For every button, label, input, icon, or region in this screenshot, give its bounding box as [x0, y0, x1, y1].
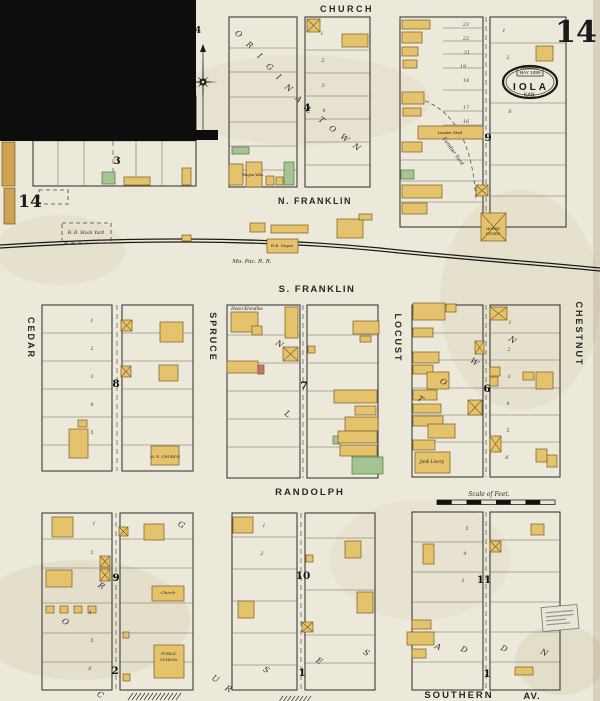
building: [60, 606, 68, 613]
railroad-label: Mo. Pac. R. R.: [231, 259, 271, 265]
scale-bar: [437, 500, 555, 505]
lot-number: 1: [508, 320, 511, 326]
sanborn-map: Hotel KlondikeM. E. CHURCHPUBLICSCHOOLHO…: [0, 0, 600, 701]
building: [123, 632, 129, 638]
building-label: Church: [161, 590, 176, 595]
building: [359, 214, 372, 220]
lot-number: 22: [462, 36, 469, 42]
building: [403, 60, 417, 68]
building: [340, 445, 377, 456]
building: [144, 524, 164, 540]
building: [258, 365, 264, 374]
block-number: 10: [296, 570, 311, 582]
building-label: LIVERY: [486, 232, 501, 236]
scale-bar-segment: [437, 500, 452, 505]
building: [345, 417, 378, 431]
lot-number: 2: [505, 55, 509, 61]
building: [352, 457, 383, 474]
building-label: Hotel Klondike: [230, 306, 263, 311]
block-number: 3: [113, 155, 120, 167]
building: [52, 517, 73, 537]
lot-number: 2: [89, 346, 93, 352]
lot-number: 21: [463, 50, 470, 56]
block-number: 2: [111, 665, 118, 677]
lot-number: 5: [506, 428, 509, 434]
building: [536, 372, 553, 389]
building: [536, 46, 553, 61]
building: [182, 168, 191, 185]
lot-number: 1: [92, 521, 95, 527]
building: [402, 32, 422, 43]
lot-number: 16: [463, 119, 470, 125]
building: [402, 20, 430, 29]
block-number: 11: [477, 574, 492, 586]
building: [182, 235, 191, 241]
building-label: Lumber Shed: [438, 131, 463, 135]
black-patch-main: [0, 0, 196, 141]
building: [413, 303, 445, 320]
block-number: 1: [483, 668, 490, 680]
building: [238, 601, 254, 618]
lot-number: 5: [90, 430, 93, 436]
building: [306, 555, 313, 562]
building: [160, 322, 183, 342]
building: [490, 367, 500, 376]
building: [227, 361, 258, 373]
sheet-number-left: 14: [18, 192, 42, 212]
block-number: 9: [112, 572, 119, 584]
map-page: Hotel KlondikeM. E. CHURCHPUBLICSCHOOLHO…: [0, 0, 600, 701]
sheet-number: 14: [555, 15, 597, 50]
lot-number: 3: [461, 578, 464, 584]
building: [4, 188, 15, 224]
building: [285, 307, 298, 338]
building: [252, 326, 262, 335]
building: [124, 177, 150, 185]
street-label-cedar: CEDAR: [26, 317, 36, 359]
building: [413, 440, 435, 450]
building: [250, 223, 265, 232]
building: [412, 649, 426, 658]
lot-number: 2: [259, 551, 263, 557]
building: [123, 674, 130, 681]
building: [353, 321, 379, 334]
lot-number: 4: [89, 402, 93, 408]
building: [531, 524, 544, 535]
building: [266, 176, 274, 185]
lot-number: 1: [90, 318, 93, 324]
stamp-state: KAN.: [524, 93, 536, 99]
building: [547, 455, 557, 467]
building-label: R. R. Stock Yard: [67, 231, 104, 236]
building: [355, 406, 376, 415]
lot-number: 23: [462, 22, 469, 28]
block-number: 9: [484, 132, 491, 144]
building: [284, 162, 294, 185]
building: [401, 170, 414, 179]
lot-number: 1: [502, 28, 505, 34]
building-label: R.R. Depot: [271, 243, 293, 248]
building-label: SCHOOL: [160, 657, 178, 662]
building: [276, 177, 283, 185]
building: [402, 47, 418, 56]
building: [413, 328, 433, 337]
building-label: Wagon Wks.: [242, 173, 264, 177]
lot-number: 2: [89, 550, 93, 556]
paper-blotch: [0, 215, 125, 285]
block-number: 8: [112, 378, 119, 390]
lot-number: 3: [321, 83, 324, 89]
iola-date-stamp: MAY 1899 IOLA KAN.: [503, 66, 557, 99]
building: [46, 570, 72, 587]
building: [536, 449, 547, 462]
revision-stamp: [541, 604, 579, 631]
street-label-church: CHURCH: [320, 4, 374, 14]
lot-number: 18: [463, 78, 469, 84]
lot-number: 19: [460, 64, 467, 70]
building: [334, 390, 377, 403]
revision-stamp-box: [541, 604, 579, 631]
block-number: 4: [303, 102, 310, 114]
scale-bar-segment: [526, 500, 541, 505]
street-label-locust: LOCUST: [393, 314, 403, 363]
lot-number: 2: [506, 347, 510, 353]
street-label-chestnut: CHESTNUT: [574, 302, 584, 367]
lot-number: 1: [320, 31, 323, 37]
building: [402, 92, 424, 104]
scale-label: Scale of Feet.: [468, 491, 510, 498]
lot-number: 3: [507, 374, 510, 380]
building: [233, 517, 253, 533]
street-label-av-: AV.: [523, 691, 540, 701]
building: [159, 365, 178, 381]
building: [338, 431, 377, 443]
lot-number: 8: [508, 109, 511, 115]
building: [78, 420, 87, 427]
lot-number: 5: [465, 526, 468, 532]
building: [337, 219, 363, 238]
lot-number: 2: [320, 58, 324, 64]
building-label: HORSE: [486, 227, 500, 231]
building: [402, 185, 442, 198]
lot-number: 4: [87, 610, 91, 616]
building-label: M. E. CHURCH: [150, 454, 181, 459]
lot-number: 4: [462, 551, 466, 557]
building: [446, 304, 456, 312]
building: [515, 667, 533, 675]
street-label-n-franklin: N. FRANKLIN: [278, 196, 352, 206]
building: [490, 377, 498, 386]
building: [360, 336, 371, 342]
building: [402, 203, 427, 214]
building: [342, 34, 368, 47]
stamp-city: IOLA: [513, 82, 549, 93]
building: [412, 620, 431, 629]
building: [271, 225, 308, 233]
building: [407, 632, 434, 645]
building: [357, 592, 373, 613]
building: [413, 404, 441, 413]
block-number: 1: [298, 667, 305, 679]
street-label-southern: SOUTHERN: [424, 690, 493, 701]
lot-number: 1: [262, 523, 265, 529]
building: [413, 352, 439, 363]
building: [423, 544, 434, 564]
building: [428, 424, 455, 438]
block-number: 6: [483, 383, 490, 395]
lot-number: 3: [90, 374, 93, 380]
building-label: Junk Livery: [419, 459, 445, 464]
street-label-spruce: SPRUCE: [208, 312, 218, 362]
building: [403, 108, 421, 116]
block-number: 7: [300, 380, 307, 392]
building: [46, 606, 54, 613]
scale-bar-segment: [496, 500, 511, 505]
building: [102, 172, 115, 184]
building: [523, 372, 534, 380]
lot-number: 5: [90, 638, 93, 644]
lot-number: 17: [463, 105, 470, 111]
section-marker: 4: [195, 26, 201, 36]
building: [2, 142, 15, 186]
paper-blotch: [440, 190, 600, 410]
black-patch-step: [196, 130, 218, 140]
building: [345, 541, 361, 558]
lot-number: 4: [505, 401, 509, 407]
building: [402, 142, 422, 152]
building-label: PUBLIC: [161, 651, 176, 656]
building: [232, 147, 249, 154]
pasted-black-patch: [0, 0, 218, 141]
paper-edge-right: [593, 0, 600, 701]
building: [74, 606, 82, 613]
stamp-date: MAY 1899: [519, 70, 540, 75]
street-label-randolph: RANDOLPH: [275, 487, 345, 498]
building: [69, 429, 88, 458]
lot-number: 4: [321, 108, 325, 114]
compass-center: [201, 80, 204, 83]
scale-bar-segment: [467, 500, 482, 505]
street-label-s-franklin: S. FRANKLIN: [279, 284, 356, 295]
building: [308, 346, 315, 353]
